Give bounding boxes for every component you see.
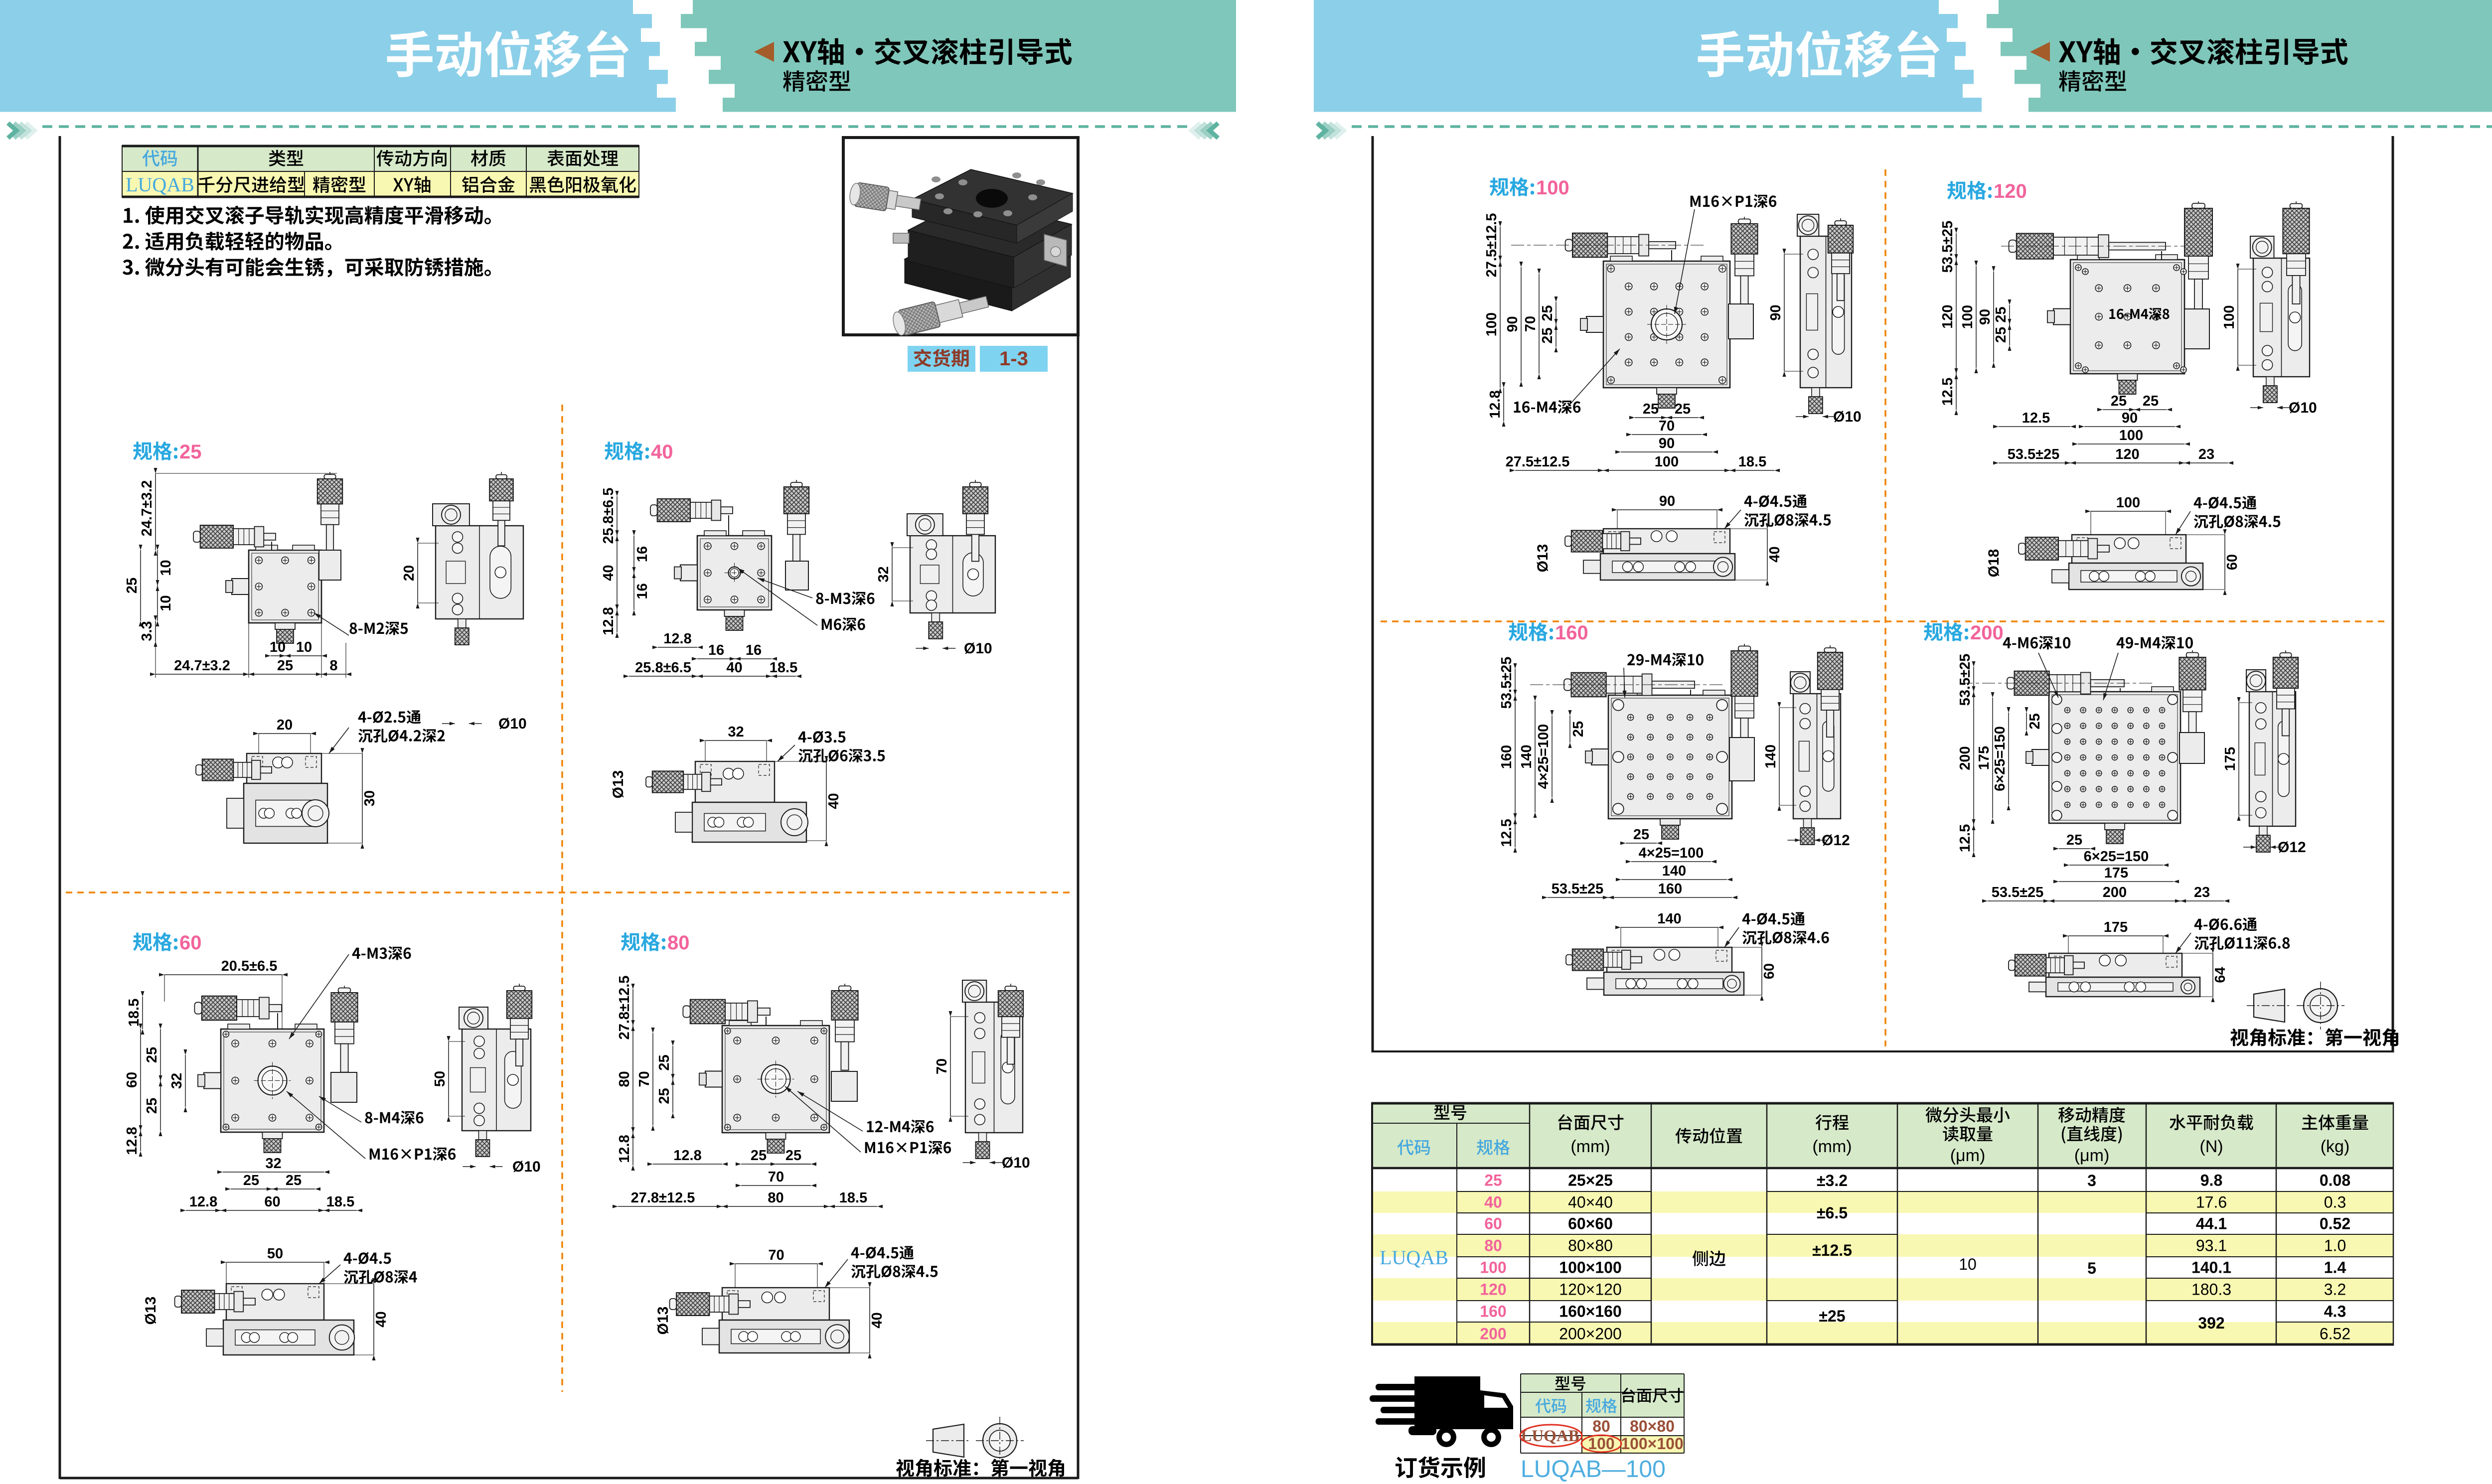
svg-text:12.5: 12.5 bbox=[2022, 410, 2050, 426]
svg-text:80: 80 bbox=[667, 932, 690, 954]
svg-text:90: 90 bbox=[1505, 316, 1521, 332]
svg-text:90: 90 bbox=[1768, 304, 1784, 320]
svg-text:0.08: 0.08 bbox=[2320, 1172, 2350, 1189]
svg-text:100: 100 bbox=[2119, 428, 2143, 444]
svg-text:53.5±25: 53.5±25 bbox=[1957, 654, 1973, 706]
svg-text:60: 60 bbox=[1761, 963, 1777, 979]
svg-text:100×100: 100×100 bbox=[1559, 1259, 1621, 1277]
svg-text:6.52: 6.52 bbox=[2320, 1325, 2350, 1343]
svg-text:5: 5 bbox=[2087, 1259, 2096, 1277]
svg-text:4×25=100: 4×25=100 bbox=[1639, 845, 1704, 861]
svg-text:40×40: 40×40 bbox=[1568, 1193, 1613, 1211]
svg-text:70: 70 bbox=[934, 1058, 950, 1074]
svg-text:40: 40 bbox=[651, 441, 673, 463]
svg-text:200: 200 bbox=[1480, 1325, 1506, 1343]
svg-text:50: 50 bbox=[267, 1246, 283, 1262]
svg-text:25: 25 bbox=[785, 1148, 801, 1164]
svg-text:120: 120 bbox=[2115, 446, 2139, 462]
svg-text:1.0: 1.0 bbox=[2324, 1237, 2346, 1255]
svg-text:90: 90 bbox=[1977, 309, 1993, 325]
svg-text:1-3: 1-3 bbox=[999, 348, 1028, 370]
svg-text:80: 80 bbox=[1484, 1237, 1502, 1255]
svg-text:200: 200 bbox=[2103, 885, 2127, 900]
svg-text:60: 60 bbox=[2224, 554, 2240, 570]
svg-text:6×25=150: 6×25=150 bbox=[1992, 726, 2008, 791]
svg-text:100×100: 100×100 bbox=[1621, 1435, 1683, 1453]
svg-text:32: 32 bbox=[728, 724, 744, 740]
svg-text:120: 120 bbox=[1480, 1281, 1506, 1299]
svg-text:12.5: 12.5 bbox=[1940, 378, 1956, 406]
svg-text:25: 25 bbox=[2027, 713, 2043, 729]
svg-text:3: 3 bbox=[2087, 1172, 2096, 1189]
svg-text:24.7±3.2: 24.7±3.2 bbox=[174, 658, 230, 674]
svg-text:25: 25 bbox=[2143, 393, 2159, 409]
svg-text:80: 80 bbox=[617, 1071, 632, 1087]
svg-text:10: 10 bbox=[1959, 1255, 1977, 1273]
svg-text:90: 90 bbox=[1659, 436, 1675, 451]
svg-text:140: 140 bbox=[1662, 863, 1686, 879]
svg-text:64: 64 bbox=[2212, 967, 2228, 983]
svg-text:12.8: 12.8 bbox=[663, 631, 691, 647]
svg-text:140: 140 bbox=[1763, 744, 1779, 768]
svg-text:20: 20 bbox=[401, 565, 417, 581]
svg-text:25: 25 bbox=[124, 578, 140, 594]
svg-text:Ø13: Ø13 bbox=[610, 770, 626, 799]
svg-text:25: 25 bbox=[656, 1054, 672, 1070]
svg-text:LUQAB: LUQAB bbox=[1380, 1246, 1448, 1269]
svg-text:17.6: 17.6 bbox=[2196, 1193, 2227, 1211]
svg-text:16: 16 bbox=[708, 642, 724, 658]
svg-text:23: 23 bbox=[2194, 885, 2210, 900]
svg-text:16: 16 bbox=[634, 583, 650, 599]
svg-text:±6.5: ±6.5 bbox=[1817, 1204, 1848, 1222]
svg-text:53.5±25: 53.5±25 bbox=[1499, 657, 1515, 709]
svg-text:25: 25 bbox=[656, 1088, 672, 1104]
svg-text:18.5: 18.5 bbox=[1738, 454, 1766, 470]
svg-text:70: 70 bbox=[768, 1169, 784, 1185]
svg-text:10: 10 bbox=[158, 560, 174, 576]
svg-text:25: 25 bbox=[1633, 827, 1649, 843]
svg-text:25: 25 bbox=[1484, 1172, 1502, 1189]
svg-text:(mm): (mm) bbox=[1570, 1137, 1610, 1156]
svg-text:LUQAB: LUQAB bbox=[126, 173, 194, 196]
svg-text:25: 25 bbox=[144, 1047, 160, 1063]
svg-text:10: 10 bbox=[158, 595, 174, 611]
svg-text:25.8±6.5: 25.8±6.5 bbox=[601, 488, 617, 544]
svg-text:12.5: 12.5 bbox=[1499, 819, 1515, 847]
svg-text:Ø13: Ø13 bbox=[655, 1307, 671, 1335]
svg-text:18.5: 18.5 bbox=[126, 999, 142, 1027]
svg-text:25.8±6.5: 25.8±6.5 bbox=[635, 660, 691, 676]
svg-text:50: 50 bbox=[432, 1071, 448, 1087]
svg-text:20: 20 bbox=[277, 717, 293, 733]
svg-text:40: 40 bbox=[1484, 1193, 1502, 1211]
svg-text:100: 100 bbox=[2221, 305, 2237, 329]
svg-text:Ø10: Ø10 bbox=[2289, 400, 2317, 416]
svg-text:160: 160 bbox=[1480, 1303, 1506, 1321]
svg-text:27.8±12.5: 27.8±12.5 bbox=[631, 1190, 695, 1206]
svg-text:(μm): (μm) bbox=[2074, 1146, 2110, 1165]
svg-text:25: 25 bbox=[179, 441, 202, 463]
svg-text:30: 30 bbox=[362, 790, 378, 806]
svg-text:32: 32 bbox=[169, 1073, 185, 1089]
svg-text:60×60: 60×60 bbox=[1568, 1215, 1613, 1233]
svg-text:0.52: 0.52 bbox=[2320, 1215, 2350, 1233]
svg-text:(N): (N) bbox=[2199, 1137, 2223, 1156]
svg-text:80×80: 80×80 bbox=[1630, 1417, 1675, 1435]
svg-text:100: 100 bbox=[1484, 312, 1500, 336]
svg-text:±12.5: ±12.5 bbox=[1812, 1241, 1852, 1259]
svg-text:25: 25 bbox=[1570, 721, 1586, 737]
svg-text:40: 40 bbox=[601, 565, 617, 581]
svg-text:27.8±12.5: 27.8±12.5 bbox=[617, 976, 632, 1040]
svg-text:200: 200 bbox=[1970, 622, 2004, 644]
svg-text:93.1: 93.1 bbox=[2196, 1237, 2227, 1255]
svg-text:12.8: 12.8 bbox=[617, 1135, 632, 1163]
svg-text:160: 160 bbox=[1555, 622, 1588, 644]
svg-text:25: 25 bbox=[144, 1098, 160, 1114]
svg-text:25: 25 bbox=[277, 658, 293, 674]
svg-text:12.8: 12.8 bbox=[124, 1127, 140, 1155]
svg-text:25: 25 bbox=[1643, 401, 1659, 417]
svg-text:9.8: 9.8 bbox=[2200, 1172, 2222, 1189]
svg-text:40: 40 bbox=[826, 793, 842, 809]
svg-text:140: 140 bbox=[1657, 911, 1681, 927]
svg-text:12.8: 12.8 bbox=[673, 1148, 701, 1164]
svg-text:200×200: 200×200 bbox=[1559, 1325, 1621, 1343]
svg-text:Ø10: Ø10 bbox=[1002, 1155, 1030, 1171]
svg-text:3.2: 3.2 bbox=[2324, 1281, 2346, 1299]
svg-text:90: 90 bbox=[2122, 410, 2138, 426]
svg-text:200: 200 bbox=[1957, 746, 1973, 770]
svg-text:392: 392 bbox=[2198, 1314, 2224, 1332]
svg-text:160: 160 bbox=[1658, 881, 1682, 897]
svg-text:25: 25 bbox=[1993, 327, 2009, 343]
svg-text:12.8: 12.8 bbox=[189, 1194, 217, 1210]
svg-text:100: 100 bbox=[1588, 1435, 1614, 1453]
svg-text:Ø10: Ø10 bbox=[964, 640, 992, 657]
svg-text:16: 16 bbox=[746, 642, 762, 658]
svg-text:4×25=100: 4×25=100 bbox=[1536, 724, 1552, 789]
svg-text:0.3: 0.3 bbox=[2324, 1193, 2346, 1211]
svg-text:23: 23 bbox=[2198, 446, 2214, 462]
svg-text:53.5±25: 53.5±25 bbox=[1552, 881, 1604, 897]
svg-text:Ø18: Ø18 bbox=[1986, 549, 2002, 578]
svg-text:±25: ±25 bbox=[1819, 1307, 1845, 1325]
svg-text:140: 140 bbox=[1519, 744, 1535, 768]
svg-text:12.8: 12.8 bbox=[601, 607, 617, 635]
svg-text:6×25=150: 6×25=150 bbox=[2084, 849, 2149, 865]
svg-text:(μm): (μm) bbox=[1950, 1146, 1986, 1165]
svg-text:Ø10: Ø10 bbox=[512, 1159, 541, 1175]
svg-text:Ø13: Ø13 bbox=[143, 1297, 159, 1325]
svg-text:175: 175 bbox=[1976, 746, 1992, 770]
svg-text:27.5±12.5: 27.5±12.5 bbox=[1484, 213, 1500, 278]
svg-text:25: 25 bbox=[243, 1173, 259, 1188]
svg-text:20.5±6.5: 20.5±6.5 bbox=[221, 958, 278, 974]
svg-text:1.4: 1.4 bbox=[2324, 1259, 2346, 1277]
svg-text:10: 10 bbox=[296, 639, 312, 655]
svg-text:180.3: 180.3 bbox=[2191, 1281, 2231, 1299]
svg-text:80×80: 80×80 bbox=[1568, 1237, 1613, 1255]
svg-text:70: 70 bbox=[768, 1247, 784, 1263]
svg-text:80: 80 bbox=[768, 1190, 783, 1206]
svg-text:LUQAB—100: LUQAB—100 bbox=[1521, 1456, 1666, 1483]
svg-text:16: 16 bbox=[634, 546, 650, 562]
svg-text:12.8: 12.8 bbox=[1487, 390, 1503, 418]
svg-text:100: 100 bbox=[1480, 1259, 1506, 1277]
svg-text:25: 25 bbox=[1540, 327, 1556, 343]
svg-text:90: 90 bbox=[1659, 493, 1675, 509]
svg-text:53.5±25: 53.5±25 bbox=[2008, 446, 2060, 462]
svg-text:175: 175 bbox=[2104, 865, 2128, 881]
svg-text:(kg): (kg) bbox=[2321, 1137, 2350, 1156]
svg-text:27.5±12.5: 27.5±12.5 bbox=[1506, 454, 1570, 470]
svg-text:Ø10: Ø10 bbox=[498, 716, 527, 732]
svg-text:120×120: 120×120 bbox=[1559, 1281, 1621, 1299]
svg-text:25: 25 bbox=[286, 1173, 302, 1188]
svg-text:120: 120 bbox=[1994, 180, 2027, 202]
svg-text:60: 60 bbox=[179, 932, 202, 954]
svg-text:25: 25 bbox=[1993, 306, 2009, 322]
svg-text:100: 100 bbox=[1655, 454, 1679, 470]
svg-text:18.5: 18.5 bbox=[839, 1190, 867, 1206]
svg-text:40: 40 bbox=[869, 1312, 885, 1328]
svg-text:100: 100 bbox=[1960, 305, 1976, 329]
svg-text:175: 175 bbox=[2222, 747, 2238, 771]
svg-text:±3.2: ±3.2 bbox=[1817, 1172, 1848, 1189]
svg-text:3.3: 3.3 bbox=[139, 621, 155, 641]
svg-text:40: 40 bbox=[373, 1311, 389, 1327]
svg-text:175: 175 bbox=[2104, 919, 2128, 935]
svg-text:Ø10: Ø10 bbox=[1833, 409, 1862, 425]
svg-text:25: 25 bbox=[1675, 401, 1691, 417]
svg-text:18.5: 18.5 bbox=[770, 660, 797, 676]
svg-text:25: 25 bbox=[2111, 393, 2127, 409]
svg-text:120: 120 bbox=[1940, 304, 1956, 328]
svg-text:40: 40 bbox=[726, 660, 742, 676]
svg-text:4.3: 4.3 bbox=[2324, 1303, 2346, 1321]
svg-text:24.7±3.2: 24.7±3.2 bbox=[139, 480, 155, 537]
svg-text:LUQAB: LUQAB bbox=[1521, 1427, 1579, 1445]
svg-text:12.5: 12.5 bbox=[1957, 824, 1973, 852]
svg-text:44.1: 44.1 bbox=[2196, 1215, 2227, 1233]
svg-text:80: 80 bbox=[1592, 1417, 1610, 1435]
svg-text:60: 60 bbox=[1484, 1215, 1502, 1233]
svg-text:160: 160 bbox=[1499, 745, 1515, 769]
svg-text:10: 10 bbox=[270, 639, 286, 655]
svg-text:32: 32 bbox=[265, 1156, 281, 1172]
svg-text:160×160: 160×160 bbox=[1559, 1303, 1621, 1321]
svg-text:70: 70 bbox=[1523, 316, 1539, 332]
svg-text:70: 70 bbox=[1659, 418, 1675, 434]
svg-text:100: 100 bbox=[2116, 495, 2140, 511]
svg-text:25: 25 bbox=[751, 1148, 767, 1164]
svg-text:8: 8 bbox=[329, 658, 337, 674]
svg-text:60: 60 bbox=[124, 1072, 140, 1088]
svg-text:140.1: 140.1 bbox=[2191, 1259, 2231, 1277]
svg-text:70: 70 bbox=[636, 1071, 652, 1087]
svg-text:Ø13: Ø13 bbox=[1535, 544, 1551, 573]
svg-text:25×25: 25×25 bbox=[1568, 1172, 1613, 1189]
svg-text:60: 60 bbox=[264, 1194, 280, 1210]
svg-text:25: 25 bbox=[2066, 832, 2082, 848]
svg-text:18.5: 18.5 bbox=[326, 1194, 354, 1210]
svg-text:40: 40 bbox=[1767, 546, 1783, 562]
svg-text:53.5±25: 53.5±25 bbox=[1940, 221, 1956, 273]
svg-text:32: 32 bbox=[876, 566, 892, 582]
svg-text:100: 100 bbox=[1536, 177, 1569, 199]
svg-text:53.5±25: 53.5±25 bbox=[1992, 885, 2044, 900]
svg-text:25: 25 bbox=[1540, 305, 1556, 321]
svg-text:(mm): (mm) bbox=[1812, 1137, 1852, 1156]
